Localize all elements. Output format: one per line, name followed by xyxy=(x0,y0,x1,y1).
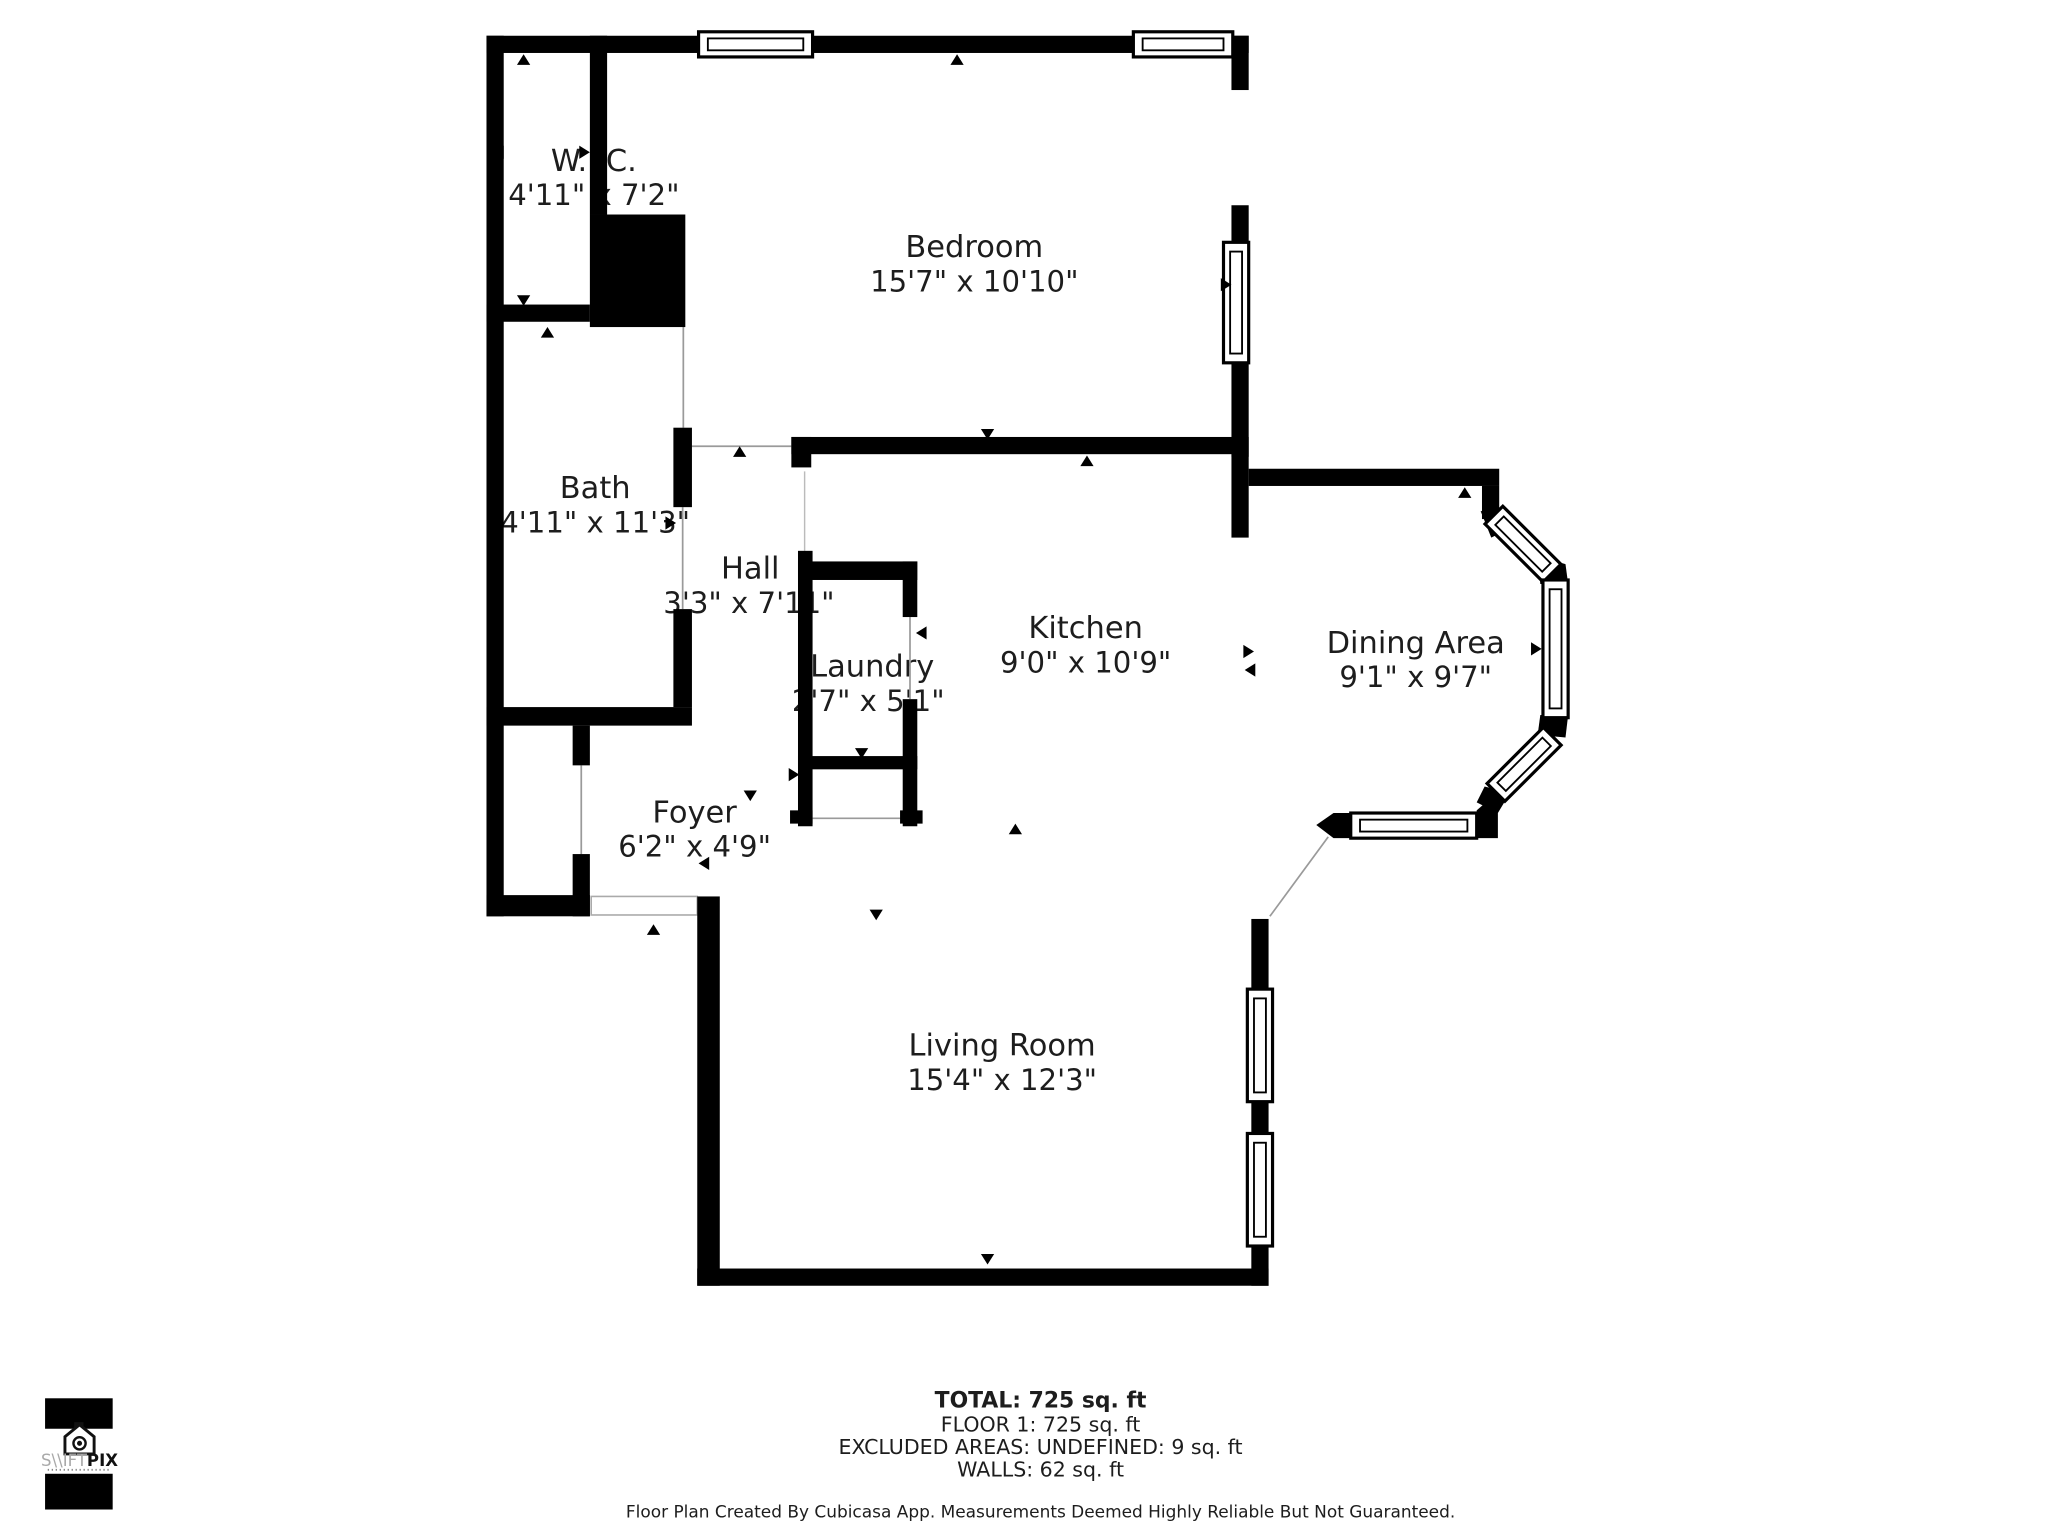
wall-segment xyxy=(486,895,589,916)
room-label-hall: Hall xyxy=(721,552,780,587)
room-label-living: Living Room xyxy=(909,1028,1096,1063)
room-label-kitchen: Kitchen xyxy=(1028,611,1143,646)
summary-excluded: EXCLUDED AREAS: UNDEFINED: 9 sq. ft xyxy=(839,1435,1243,1459)
arrow-up-icon xyxy=(733,446,746,457)
window-bay-lower-diagonal xyxy=(1487,727,1561,801)
wall-segment xyxy=(486,707,691,726)
room-dims-kitchen: 9'0" x 10'9" xyxy=(1000,646,1171,680)
summary-walls: WALLS: 62 sq. ft xyxy=(957,1457,1124,1481)
wall-segment xyxy=(1231,205,1248,242)
wall-segment xyxy=(1249,469,1500,486)
floorplan-canvas: W.I.C. 4'11" x 7'2" Bedroom 15'7" x 10'1… xyxy=(0,0,2048,1536)
room-dims-bath: 4'11" x 11'3" xyxy=(500,505,690,539)
arrow-up-icon xyxy=(647,924,660,935)
wall-segment xyxy=(798,551,813,826)
arrow-up-icon xyxy=(1458,487,1471,498)
summary-total: TOTAL: 725 sq. ft xyxy=(935,1389,1147,1414)
window-top-left xyxy=(699,32,813,57)
room-dims-foyer: 6'2" x 4'9" xyxy=(618,830,771,864)
arrow-left-icon xyxy=(916,626,927,639)
arrow-right-icon xyxy=(789,768,800,781)
window-bay-right xyxy=(1543,580,1568,718)
room-dims-bedroom: 15'7" x 10'10" xyxy=(870,264,1078,298)
room-label-bath: Bath xyxy=(560,471,631,506)
wall-segment xyxy=(697,1269,1268,1286)
wall-segment xyxy=(791,437,1248,454)
arrow-up-icon xyxy=(517,54,530,65)
arrow-up-icon xyxy=(541,327,554,338)
arrow-down-icon xyxy=(517,295,530,306)
arrow-down-icon xyxy=(744,791,757,802)
disclaimer-text: Floor Plan Created By Cubicasa App. Meas… xyxy=(626,1501,1455,1521)
arrow-left-icon xyxy=(1245,663,1256,676)
entry-door xyxy=(591,896,697,915)
wall-segment xyxy=(590,36,607,215)
room-label-foyer: Foyer xyxy=(652,795,737,830)
wall-segment xyxy=(1231,454,1248,537)
swiftpix-logo: S\\IFTPIX xyxy=(41,1398,118,1509)
arrow-up-icon xyxy=(1009,824,1022,835)
wall-segment xyxy=(573,726,590,766)
room-dims-dining: 9'1" x 9'7" xyxy=(1339,660,1492,694)
wall-segment xyxy=(486,36,503,917)
wall-segment xyxy=(798,756,917,769)
room-label-dining: Dining Area xyxy=(1327,626,1505,661)
logo-bar-bottom xyxy=(45,1474,113,1510)
wall-segment xyxy=(790,810,813,823)
area-summary: TOTAL: 725 sq. ft FLOOR 1: 725 sq. ft EX… xyxy=(626,1389,1455,1522)
wall-segment xyxy=(900,810,923,823)
room-dims-living: 15'4" x 12'3" xyxy=(907,1063,1097,1097)
summary-floor1: FLOOR 1: 725 sq. ft xyxy=(941,1412,1141,1436)
room-label-laundry: Laundry xyxy=(810,650,934,685)
logo-wordmark: S\\IFTPIX xyxy=(41,1451,118,1470)
room-label-bedroom: Bedroom xyxy=(905,230,1043,265)
arrow-up-icon xyxy=(950,54,963,65)
arrow-down-icon xyxy=(870,910,883,921)
arrow-right-icon xyxy=(1531,642,1542,655)
window-living-lower xyxy=(1247,1133,1272,1246)
window-bay-bottom xyxy=(1351,813,1477,838)
window-bay-upper-diagonal xyxy=(1485,506,1561,582)
wall-segment xyxy=(798,561,917,580)
bay-corner-wedge xyxy=(1316,813,1350,838)
window-top-right xyxy=(1133,32,1232,57)
window-bedroom-right xyxy=(1223,242,1248,362)
room-dims-laundry: 2'7" x 5'1" xyxy=(792,684,945,718)
wall-segment xyxy=(791,437,811,467)
arrow-up-icon xyxy=(1080,456,1093,467)
window-living-upper xyxy=(1247,989,1272,1102)
wall-segment xyxy=(903,561,918,617)
arrow-right-icon xyxy=(1243,645,1254,658)
wall-segment xyxy=(697,896,720,1285)
wall-segment xyxy=(673,428,692,507)
arrow-down-icon xyxy=(981,1254,994,1265)
void-block xyxy=(590,215,685,328)
wall-segment xyxy=(673,609,692,707)
wall-segment xyxy=(486,305,589,322)
